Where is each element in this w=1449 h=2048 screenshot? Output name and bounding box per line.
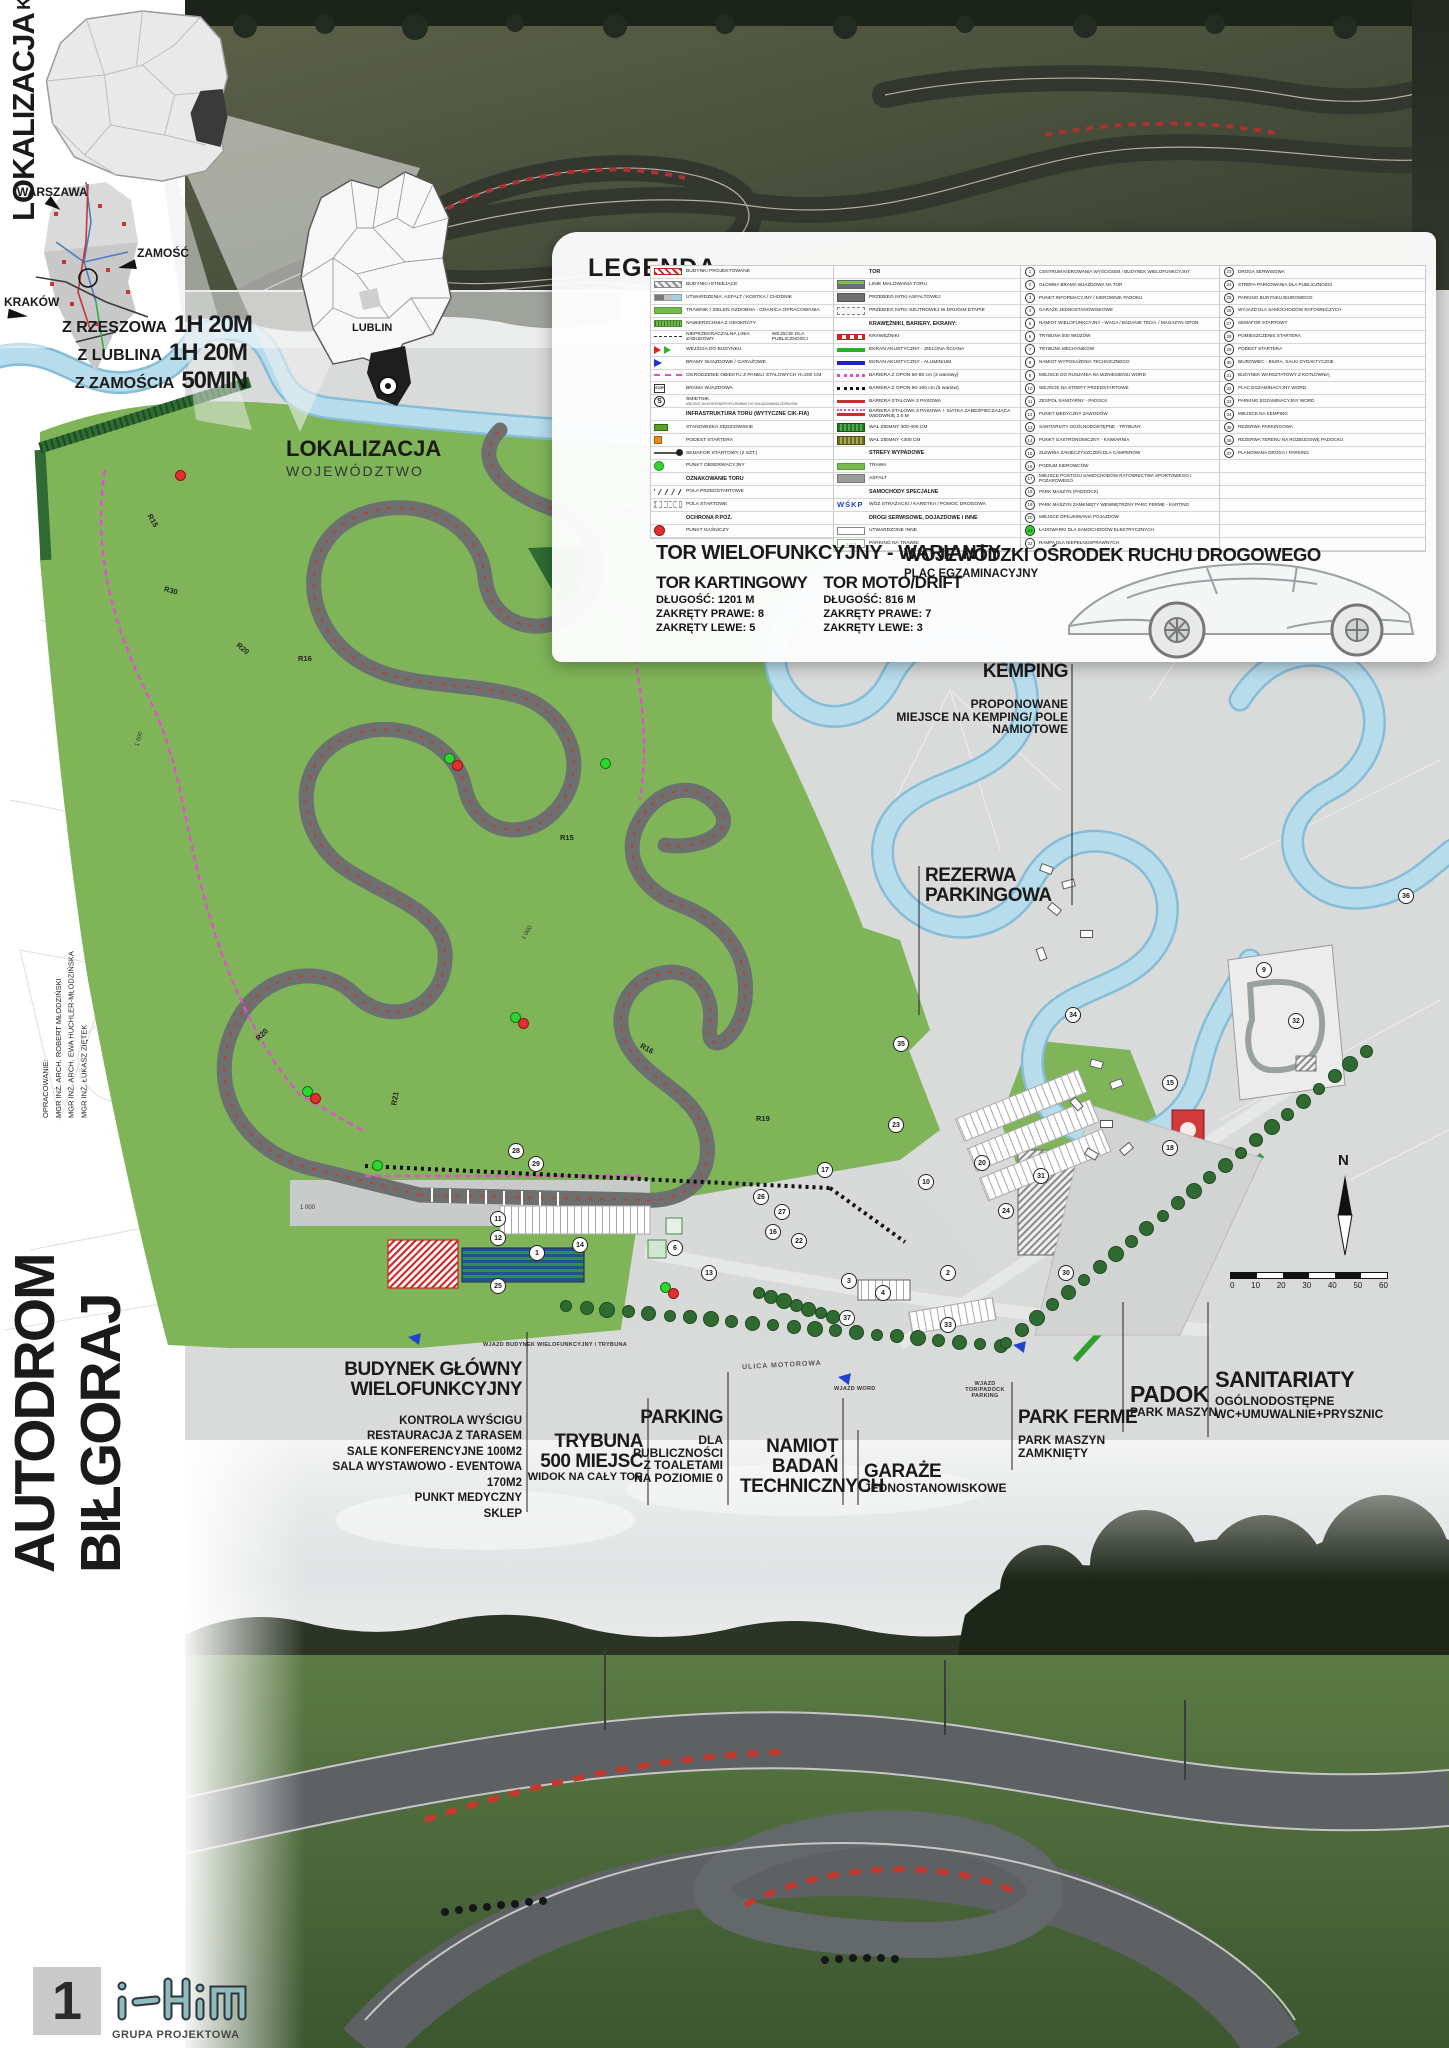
kemping-sub2: MIEJSCE NA KEMPING/ POLE NAMIOTOWE [890, 711, 1068, 736]
sanitariaty-line1: SANITARIATY [1215, 1368, 1383, 1391]
legend-row: DROGI SERWISOWE, DOJAZDOWE I INNE [834, 512, 1020, 525]
legend-swatch-paving-icon [654, 294, 686, 301]
legend-numbered-row: 12PUNKT MEDYCZNY ZAWODÓW [1021, 408, 1219, 421]
legend-sublabel: MIEJSCE NA KONTENERY/POJEMNIKI DO SKŁADO… [686, 402, 797, 406]
legend-empty-row [1220, 512, 1425, 525]
plan-marker-6: 6 [667, 1240, 683, 1256]
legend-numbered-row: 6TRYBUNA 500 WIDZÓW [1021, 331, 1219, 344]
legend-number-badge: 35 [1223, 423, 1235, 432]
travel-from: Z RZESZOWA [62, 319, 167, 336]
legend-label: PRZEBIEG NITKI ASFALTOWEJ [869, 295, 941, 300]
legend-numbered-row: 15ZLEWNIA ZANIECZYSZCZEŃ DLA CAMPERÓW [1021, 447, 1219, 460]
legend-numbered-label: MIEJSCE DO RUSZANIA NA WZNIESIENIU WORD [1039, 373, 1146, 378]
city-label-krakow: KRAKÓW [4, 295, 59, 309]
tree-icon [1093, 1260, 1107, 1274]
legend-numbered-row: 13SANITARIATY OGÓLNODOSTĘPNE - TRYBUNY [1021, 421, 1219, 434]
plan-marker-12: 12 [490, 1230, 506, 1246]
legend-number-badge: 18 [1024, 488, 1036, 497]
legend-numbered-row: 7TRYBUNA MECHANIKÓW [1021, 344, 1219, 357]
legend-swatch-hatch-red-icon [654, 268, 686, 275]
credits-author: MGR INŻ. ŁUKASZ ZIĘTEK [78, 948, 91, 1118]
plan-marker-17: 17 [817, 1162, 833, 1178]
legend-numbered-row: 14PUNKT GASTRONOMICZNY - KAWIARNIA [1021, 434, 1219, 447]
label-garaze: GARAŻE JEDNOSTANOWISKOWE [864, 1462, 1006, 1495]
legend-label: UTWARDZONE INNE [869, 528, 917, 533]
label-namiot-badan: NAMIOT BADAŃ TECHNICZNYCH [740, 1437, 838, 1497]
legend-numbered-label: ŁADOWARKI DLA SAMOCHODÓW ELEKTRYCZNYCH [1039, 528, 1154, 533]
tree-icon [1296, 1094, 1311, 1109]
legend-row: BARIERA Z OPON 90-100 cm (5 warstw) [834, 382, 1020, 395]
legend-numbered-label: BUDYNEK WARSZTATOWY Z KOTŁOWNIĄ [1238, 373, 1330, 378]
legend-number-badge: 10 [1024, 384, 1036, 393]
legend-swatch-tires-black-icon [837, 387, 869, 390]
legend-number-badge: 7 [1024, 345, 1036, 354]
legend-row: PRZEBIEG NITKI SZUTROWEJ W DRUGIM ETAPIE [834, 305, 1020, 318]
legend-numbered-row: 28POMIESZCZENIE STARTERA [1220, 331, 1425, 344]
tree-icon [932, 1334, 945, 1347]
legend-row: EKRAN AKUSTYCZNY - ZIELONA ŚCIANA [834, 344, 1020, 357]
legend-swatch-fence-icon [654, 374, 686, 376]
plan-marker-31: 31 [1033, 1168, 1049, 1184]
legend-swatch-startfield-icon [654, 501, 686, 508]
legend-column-surfaces: BUDYNKI PROJEKTOWANEBUDYNKI ISTNIEJĄCEUT… [650, 265, 834, 539]
tree-icon [871, 1329, 883, 1341]
legend-number-badge: 33 [1223, 397, 1235, 406]
plan-marker-4: 4 [875, 1285, 891, 1301]
plan-marker-3: 3 [841, 1273, 857, 1289]
fire-point-icon [668, 1288, 679, 1299]
credits-author: MGR INŻ. ARCH. EWA HUCHLER-MŁODZIŃSKA [66, 948, 79, 1118]
tree-icon [1125, 1235, 1138, 1248]
variant-karting-name: TOR KARTINGOWY [656, 573, 807, 593]
city-label-zamosc: ZAMOŚĆ [137, 246, 189, 260]
tree-icon [910, 1330, 926, 1346]
budynek-line2: WIELOFUNKCYJNY [322, 1380, 522, 1400]
legend-swatch-semaphore-icon [654, 452, 686, 454]
legend-label: KRAWĘŻNIKI [869, 334, 899, 339]
park-ferme-line2: PARK MASZYN [1018, 1434, 1137, 1447]
legend-row: PRZEBIEG NITKI ASFALTOWEJ [834, 292, 1020, 305]
tree-icon [801, 1302, 816, 1317]
legend-number-badge: 4 [1024, 307, 1036, 316]
legend-numbered-row: 23DROGA SERWISOWA [1220, 266, 1425, 279]
legend-number-badge: 17 [1024, 475, 1036, 484]
legend-number-badge: 12 [1024, 410, 1036, 419]
legend-section-header: OZNAKOWANIE TORU [654, 476, 744, 482]
logo-subtitle: GRUPA PROJEKTOWA [112, 2029, 252, 2041]
legend-label: PUNKT GAŚNICZY [686, 528, 729, 533]
legend-numbered-label: PLANOWANA DROGA I PARKING [1238, 451, 1309, 456]
legend-empty-row [1220, 486, 1425, 499]
parking-line: DLA [625, 1434, 723, 1447]
legend-numbered-row: 10WEJŚCIE NA STREFY PRZEDSTARTOWE [1021, 382, 1219, 395]
legend-row: KRAWĘŻNIKI, BARIERY, EKRANY: [834, 318, 1020, 331]
scale-tick: 40 [1328, 1281, 1337, 1290]
legend-numbered-row: 31BUDYNEK WARSZTATOWY Z KOTŁOWNIĄ [1220, 370, 1425, 383]
track-radius-label: R20 [254, 1026, 270, 1042]
car-sketch [1057, 548, 1427, 660]
legend-swatch-white-icon [837, 527, 869, 535]
plan-marker-15: 15 [1162, 1075, 1178, 1091]
poster-autodrom-bilgoraj: { "colors":{"site_green":"#7fb558","rive… [0, 0, 1449, 2048]
legend-row: BUDYNKI ISTNIEJĄCE [651, 279, 833, 292]
legend-numbered-row: 18PARK MASZYN (PADDOCK) [1021, 486, 1219, 499]
legend-swatch-dot-red-icon [654, 525, 686, 536]
garaze-line1: GARAŻE [864, 1462, 1006, 1482]
legend-column-numbered-1: 1CENTRUM KIEROWANIA WYŚCIGIEM / BUDYNEK … [1020, 265, 1220, 552]
tree-icon [1171, 1196, 1185, 1210]
legend-label: BARIERA STALOWA 3 PASOWA + SIATKA ZABEZP… [869, 409, 1017, 419]
legend-row: INFRASTRUKTURA TORU (WYTYCZNE CIK-FIA) [651, 408, 833, 421]
legend-row: STOPBRAMA WJAZDOWA [651, 382, 833, 395]
tree-icon [767, 1319, 779, 1331]
tree-icon [1000, 1337, 1012, 1349]
legend-row: BARIERA STALOWA 3 PASOWA + SIATKA ZABEZP… [834, 408, 1020, 421]
tree-icon [641, 1306, 656, 1321]
budynek-item: SALE KONFERENCYJNE 100M2 [322, 1445, 522, 1461]
label-park-ferme: PARK FERME PARK MASZYN ZAMKNIĘTY [1018, 1408, 1137, 1459]
legend-numbered-label: PLAC EGZAMINACYJNY WORD [1238, 386, 1306, 391]
legend-row: PUNKT GAŚNICZY [651, 525, 833, 538]
legend-number-badge: 29 [1223, 345, 1235, 354]
scale-bar: 0102030405060 [1230, 1272, 1388, 1290]
legend-numbered-label: WEJŚCIE NA STREFY PRZEDSTARTOWE [1039, 386, 1129, 391]
legend-row: ASFALT [834, 473, 1020, 486]
legend-section-header: SAMOCHODY SPECJALNE [837, 489, 938, 495]
legend-numbered-label: PARK MASZYN ZAMKNIĘTY WEWNĘTRZNY PARC FE… [1039, 503, 1189, 508]
tree-icon [622, 1305, 635, 1318]
track-radius-label: R19 [756, 1114, 770, 1123]
park-ferme-line1: PARK FERME [1018, 1408, 1137, 1428]
legend-number-badge: 34 [1223, 410, 1235, 419]
legend-numbered-row: 1CENTRUM KIEROWANIA WYŚCIGIEM / BUDYNEK … [1021, 266, 1219, 279]
legend-row: WŚKPWÓZ STRAŻACKI / KARETKA / POMOC DROG… [834, 499, 1020, 512]
legend-numbered-label: BIUROWIEC - BIURA, SALKI DYDAKTYCZNE [1238, 360, 1334, 365]
legend-numbered-row: 3PUNKT INFORMACYJNY / KIEROWNIK PADOKU [1021, 292, 1219, 305]
legend-numbered-label: CENTRUM KIEROWANIA WYŚCIGIEM / BUDYNEK W… [1039, 270, 1190, 275]
parking-line1: PARKING [625, 1408, 723, 1428]
tree-icon [599, 1302, 615, 1318]
travel-time: 50MIN [181, 367, 247, 394]
plan-marker-23: 23 [888, 1117, 904, 1133]
camper-icon [1119, 1142, 1134, 1156]
scale-tick: 30 [1302, 1281, 1311, 1290]
track-radius-label: R15 [560, 833, 574, 842]
travel-time: 1H 20M [174, 311, 252, 338]
budynek-item: SKLEP [322, 1507, 522, 1523]
legend-row: WEJŚCIA DO BUDYNKU [651, 344, 833, 357]
legend-label: SEMAFOR STARTOWY (2 SZT.) [686, 451, 757, 456]
padok-line1: PADOK [1130, 1382, 1217, 1406]
legend-number-badge: 9 [1024, 371, 1036, 380]
plan-marker-34: 34 [1065, 1007, 1081, 1023]
scale-ticks: 0102030405060 [1230, 1281, 1388, 1290]
poster-title: AUTODROM BIŁGORAJ [2, 1108, 102, 1573]
legend-label: PUNKT OBSERWACYJNY [686, 463, 745, 468]
legend-row: WAŁ ZIEMNY <300 CM [834, 434, 1020, 447]
travel-time-row: Z ZAMOŚCIA50MIN [62, 368, 247, 396]
camper-icon [1100, 1120, 1113, 1128]
observation-point-icon [600, 758, 611, 769]
location-region-title: LOKALIZACJA [286, 436, 441, 462]
legend-number-badge: 32 [1223, 384, 1235, 393]
legend-swatch-gray-icon [837, 474, 869, 483]
travel-time-row: Z RZESZOWA1H 20M [62, 312, 247, 340]
legend-swatch-orange-icon [654, 436, 686, 444]
legend-label: LINIE MALOWANIA TORU [869, 282, 927, 287]
legend-swatch-green-icon [837, 463, 869, 470]
variant-moto-right: ZAKRĘTY PRAWE: 7 [823, 608, 962, 621]
tree-icon [1249, 1133, 1263, 1147]
tree-icon [580, 1301, 594, 1315]
location-region-subtitle: WOJEWÓDZTWO [286, 463, 441, 479]
legend-swatch-ekran-blue-icon [837, 361, 869, 365]
legend-number-badge: 30 [1223, 358, 1235, 367]
fire-point-icon [518, 1018, 529, 1029]
scale-tick: 0 [1230, 1281, 1234, 1290]
tree-icon [1313, 1083, 1325, 1095]
plan-marker-13: 13 [701, 1265, 717, 1281]
legend-label: EKRAN AKUSTYCZNY - ZIELONA ŚCIANA [869, 347, 964, 352]
legend-numbered-label: GARAŻE JEDNOSTANOWISKOWE [1039, 308, 1113, 313]
variant-karting: TOR KARTINGOWY DŁUGOŚĆ: 1201 M ZAKRĘTY P… [656, 573, 807, 636]
legend-numbered-label: WYJAZD DLA SAMOCHODÓW RATOWNICZYCH [1238, 308, 1341, 313]
legend-label: PRZEBIEG NITKI SZUTROWEJ W DRUGIM ETAPIE [869, 308, 985, 313]
legend-swatch-tires-pink-icon [837, 374, 869, 377]
tree-icon [1108, 1246, 1124, 1262]
legend-row: UTWARDZONE INNE [834, 525, 1020, 538]
tree-icon [1281, 1108, 1294, 1121]
legend-number-badge: 31 [1223, 371, 1235, 380]
tree-icon [826, 1310, 840, 1324]
label-rezerwa-parkingowa: REZERWA PARKINGOWA [925, 866, 1052, 906]
legend-row: SŚMIETNIKMIEJSCE NA KONTENERY/POJEMNIKI … [651, 395, 833, 408]
plan-marker-22: 22 [791, 1233, 807, 1249]
legend-numbered-label: PUNKT MEDYCZNY ZAWODÓW [1039, 412, 1108, 417]
camper-icon [1069, 1096, 1083, 1111]
credits-author: MGR INŻ. ARCH. ROBERT MŁODZIŃSKI [53, 948, 66, 1118]
dimension-label: 1 000 [521, 925, 534, 941]
camper-icon [1061, 878, 1076, 889]
tree-icon [1264, 1119, 1280, 1135]
legend-number-badge: 28 [1223, 332, 1235, 341]
budynek-functions: KONTROLA WYŚCIGU RESTAURACJA Z TARASEM S… [322, 1414, 522, 1523]
legend-row: KRAWĘŻNIKI [834, 331, 1020, 344]
legend-numbered-row: 19PARK MASZYN ZAMKNIĘTY WEWNĘTRZNY PARC … [1021, 499, 1219, 512]
scale-tick: 10 [1251, 1281, 1260, 1290]
tree-icon [787, 1320, 801, 1334]
legend-row: NAWIERZCHNIA Z GEOKRATY [651, 318, 833, 331]
scale-tick: 20 [1277, 1281, 1286, 1290]
legend-numbered-label: MIEJSCE OPŁUKIWANIA POJAZDÓW [1039, 515, 1119, 520]
legend-row: OGRODZENIE OBIEKTU Z PANELI STALOWYCH H=… [651, 370, 833, 383]
legend-row: WAŁ ZIEMNY 300-400 CM [834, 421, 1020, 434]
legend-numbered-label: GŁÓWNA BRAMA WJAZDOWA NA TOR [1039, 283, 1122, 288]
tree-icon [753, 1287, 765, 1299]
legend-number-badge: 8 [1024, 358, 1036, 367]
legend-row: OCHRONA P.POŻ. [651, 512, 833, 525]
legend-empty-row [1220, 499, 1425, 512]
legend-label: WAŁ ZIEMNY <300 CM [869, 438, 921, 443]
legend-swatch-asphalt-icon [837, 293, 869, 302]
sanitariaty-line2: OGÓLNODOSTĘPNE [1215, 1395, 1383, 1408]
legend-swatch-wal-olive-icon [837, 436, 869, 445]
legend-number-badge: 23 [1223, 268, 1235, 277]
sheet-number-box: 1 [33, 1967, 101, 2035]
legend-numbered-row: 34MIEJSCE NA KEMPING [1220, 408, 1425, 421]
plan-marker-16: 16 [765, 1224, 781, 1240]
plan-marker-30: 30 [1058, 1265, 1074, 1281]
track-radius-label: R15 [146, 512, 161, 528]
legend-swatch-entry-icon [654, 346, 686, 354]
plan-marker-35: 35 [893, 1036, 909, 1052]
legend-numbered-label: ZLEWNIA ZANIECZYSZCZEŃ DLA CAMPERÓW [1039, 451, 1140, 456]
legend-section-header: INFRASTRUKTURA TORU (WYTYCZNE CIK-FIA) [654, 411, 809, 417]
legend-numbered-label: POMIESZCZENIE STARTERA [1238, 334, 1301, 339]
legend-numbered-row: 5NAMIOT WIELOFUNKCYJNY - WAGA / BADANIE … [1021, 318, 1219, 331]
legend-number-badge: 24 [1223, 281, 1235, 290]
tree-icon [1218, 1158, 1233, 1173]
plan-marker-37: 37 [839, 1310, 855, 1326]
legend-swatch-wal-green-icon [837, 423, 869, 432]
legend-numbered-label: MIEJSCE NA KEMPING [1238, 412, 1288, 417]
legend-number-badge: 2 [1024, 281, 1036, 290]
legend-row: EKRAN AKUSTYCZNY - ALUMINIUM [834, 357, 1020, 370]
legend-numbered-row: 37PLANOWANA DROGA I PARKING [1220, 447, 1425, 460]
plan-marker-33: 33 [940, 1317, 956, 1333]
legend-row: TRAWA [834, 460, 1020, 473]
legend-label: OGRODZENIE OBIEKTU Z PANELI STALOWYCH H=… [686, 373, 821, 378]
legend-label: BRAMY WJAZDOWE / GARAŻOWE [686, 360, 766, 365]
variant-karting-right: ZAKRĘTY PRAWE: 8 [656, 608, 807, 621]
legend-numbered-label: PUNKT GASTRONOMICZNY - KAWIARNIA [1039, 438, 1129, 443]
legend-numbered-row: 26WYJAZD DLA SAMOCHODÓW RATOWNICZYCH [1220, 305, 1425, 318]
legend-number-badge: 27 [1223, 319, 1235, 328]
legend-swatch-prestart-icon [654, 489, 686, 495]
legend-number-badge: 6 [1024, 332, 1036, 341]
plan-marker-24: 24 [998, 1203, 1014, 1219]
legend-numbered-row: 27SEMAFOR STARTOWY [1220, 318, 1425, 331]
legend-numbered-label: NAMIOT WYPOSAŻENIA TECHNICZNEGO [1039, 360, 1129, 365]
section-title-location-region: LOKALIZACJA WOJEWÓDZTWO [286, 436, 441, 479]
entry-label-wjazd-budynek: WJAZD BUDYNEK WIELOFUNKCYJNY / TRYBUNA [483, 1342, 627, 1348]
plan-marker-18: 18 [1162, 1140, 1178, 1156]
legend-numbered-label: TRYBUNA 500 WIDZÓW [1039, 334, 1090, 339]
plan-marker-32: 32 [1288, 1013, 1304, 1029]
tree-icon [1360, 1045, 1373, 1058]
plan-marker-29: 29 [528, 1156, 544, 1172]
legend-label: STANOWISKA SĘDZIOWSKIE [686, 425, 753, 430]
legend-row: BARIERA Z OPON 50-80 cm (3 warstwy) [834, 370, 1020, 383]
kemping-sub1: PROPONOWANE [890, 698, 1068, 711]
legend-row: LINIE MALOWANIA TORU [834, 279, 1020, 292]
tree-icon [683, 1310, 697, 1324]
entry-label-wjazd-word: WJAZD WORD [834, 1386, 876, 1392]
travel-times: Z RZESZOWA1H 20MZ LUBLINA1H 20MZ ZAMOŚCI… [62, 312, 247, 396]
legend-swatch-steel-net-icon [837, 413, 869, 416]
tree-icon [1157, 1210, 1169, 1222]
tree-icon [1235, 1147, 1247, 1159]
label-sanitariaty: SANITARIATY OGÓLNODOSTĘPNE WC+UMUWALNIE+… [1215, 1368, 1383, 1420]
padok-line2: PARK MASZYN [1130, 1406, 1217, 1419]
plan-marker-14: 14 [572, 1237, 588, 1253]
legend-swatch-ekran-green-icon [837, 348, 869, 352]
legend-numbered-row: 30BIUROWIEC - BIURA, SALKI DYDAKTYCZNE [1220, 357, 1425, 370]
legend-numbered-label: REZERWA TERENU NA ROZBUDOWĘ PADOCKU [1238, 438, 1343, 443]
budynek-line1: BUDYNEK GŁÓWNY [322, 1360, 522, 1380]
legend-swatch-hatch-gray-icon [654, 281, 686, 288]
sanitariaty-line3: WC+UMUWALNIE+PRYSZNIC [1215, 1408, 1383, 1421]
legend-label: TRAWA [869, 463, 886, 468]
plan-marker-26: 26 [753, 1189, 769, 1205]
legend-numbered-row: 4GARAŻE JEDNOSTANOWISKOWE [1021, 305, 1219, 318]
tree-icon [1186, 1183, 1202, 1199]
legend-number-badge: 37 [1223, 449, 1235, 458]
scale-strip [1230, 1272, 1388, 1279]
legend-row: BARIERA STALOWA 3 PASOWA [834, 395, 1020, 408]
plan-marker-28: 28 [508, 1143, 524, 1159]
voivodeship-map [293, 158, 455, 413]
budynek-item: KONTROLA WYŚCIGU [322, 1414, 522, 1430]
track-radius-label: R30 [163, 584, 179, 596]
tree-icon [1029, 1310, 1045, 1326]
legend-numbered-label: DROGA SERWISOWA [1238, 270, 1285, 275]
legend-numbered-row: 24STREFA PARKOWANIA DLA PUBLICZNOŚCI [1220, 279, 1425, 292]
legend-label: BUDYNKI ISTNIEJĄCE [686, 282, 737, 287]
namiot-line: BADAŃ [740, 1457, 838, 1477]
fire-point-icon [310, 1093, 321, 1104]
budynek-item: RESTAURACJA Z TARASEM [322, 1429, 522, 1445]
legend-swatch-buildline-icon [654, 336, 686, 337]
legend-column-track: TORLINIE MALOWANIA TORUPRZEBIEG NITKI AS… [833, 265, 1021, 552]
legend-numbered-label: PODIUM KIEROWCÓW [1039, 464, 1089, 469]
legend-empty-row [1220, 460, 1425, 473]
variant-moto-left: ZAKRĘTY LEWE: 3 [823, 622, 962, 635]
tree-icon [890, 1329, 904, 1343]
legend-label: NIEPRZEKRACZALNA LINIA ZABUDOWY [686, 332, 764, 342]
legend-swatch-green-icon [654, 307, 686, 314]
dimension-label: 1 000 [135, 731, 145, 747]
legend-swatch-kerb-icon [837, 334, 869, 340]
tree-icon [1015, 1323, 1029, 1337]
legend-numbered-label: SANITARIATY OGÓLNODOSTĘPNE - TRYBUNY [1039, 425, 1141, 430]
tree-icon [1139, 1221, 1154, 1236]
parking-line: NA POZIOMIE 0 [625, 1472, 723, 1485]
legend-swatch-steel-icon [837, 400, 869, 403]
tree-icon [849, 1325, 864, 1340]
track-radius-label: R21 [389, 1091, 400, 1106]
plan-marker-36: 36 [1398, 888, 1414, 904]
tree-icon [1046, 1298, 1059, 1311]
legend-number-badge: 1 [1024, 268, 1036, 277]
legend-numbered-label: PODEST STARTERA [1238, 347, 1282, 352]
label-parking: PARKING DLA PUBLICZNOŚCI Z TOALETAMI NA … [625, 1408, 723, 1484]
legend-swatch-gravel-icon [837, 307, 869, 315]
rezerwa-line1: REZERWA [925, 866, 1052, 886]
legend-row: TOR [834, 266, 1020, 279]
variant-karting-left: ZAKRĘTY LEWE: 5 [656, 622, 807, 635]
tree-icon [815, 1307, 827, 1319]
camper-icon [1036, 947, 1048, 962]
tree-icon [745, 1316, 760, 1331]
legend-row: BUDYNKI PROJEKTOWANE [651, 266, 833, 279]
tree-icon [952, 1335, 967, 1350]
legend-label: BRAMA WJAZDOWA [686, 386, 733, 391]
legend-number-badge: 36 [1223, 436, 1235, 445]
tree-icon [664, 1310, 676, 1322]
legend-number-badge: 16 [1024, 462, 1036, 471]
legend-label-secondary: WEJŚCIE DLA PUBLICZNOŚCI [772, 332, 830, 342]
